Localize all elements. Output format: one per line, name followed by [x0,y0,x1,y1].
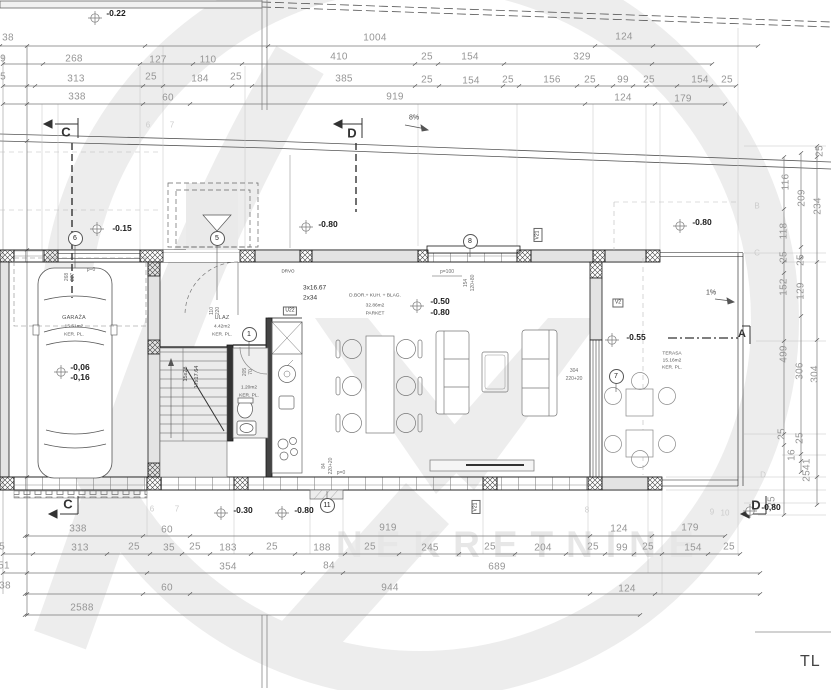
stairs [160,348,227,477]
kitchen [272,322,302,473]
wc [233,347,268,438]
plan-drawing: NEKRETNINE [0,0,831,690]
floor-plan-canvas: NEKRETNINE [0,0,831,690]
k2-logo-watermark: NEKRETNINE [60,0,775,675]
watermark-brand-text: NEKRETNINE [336,524,707,565]
tv-cabinet [430,460,534,471]
